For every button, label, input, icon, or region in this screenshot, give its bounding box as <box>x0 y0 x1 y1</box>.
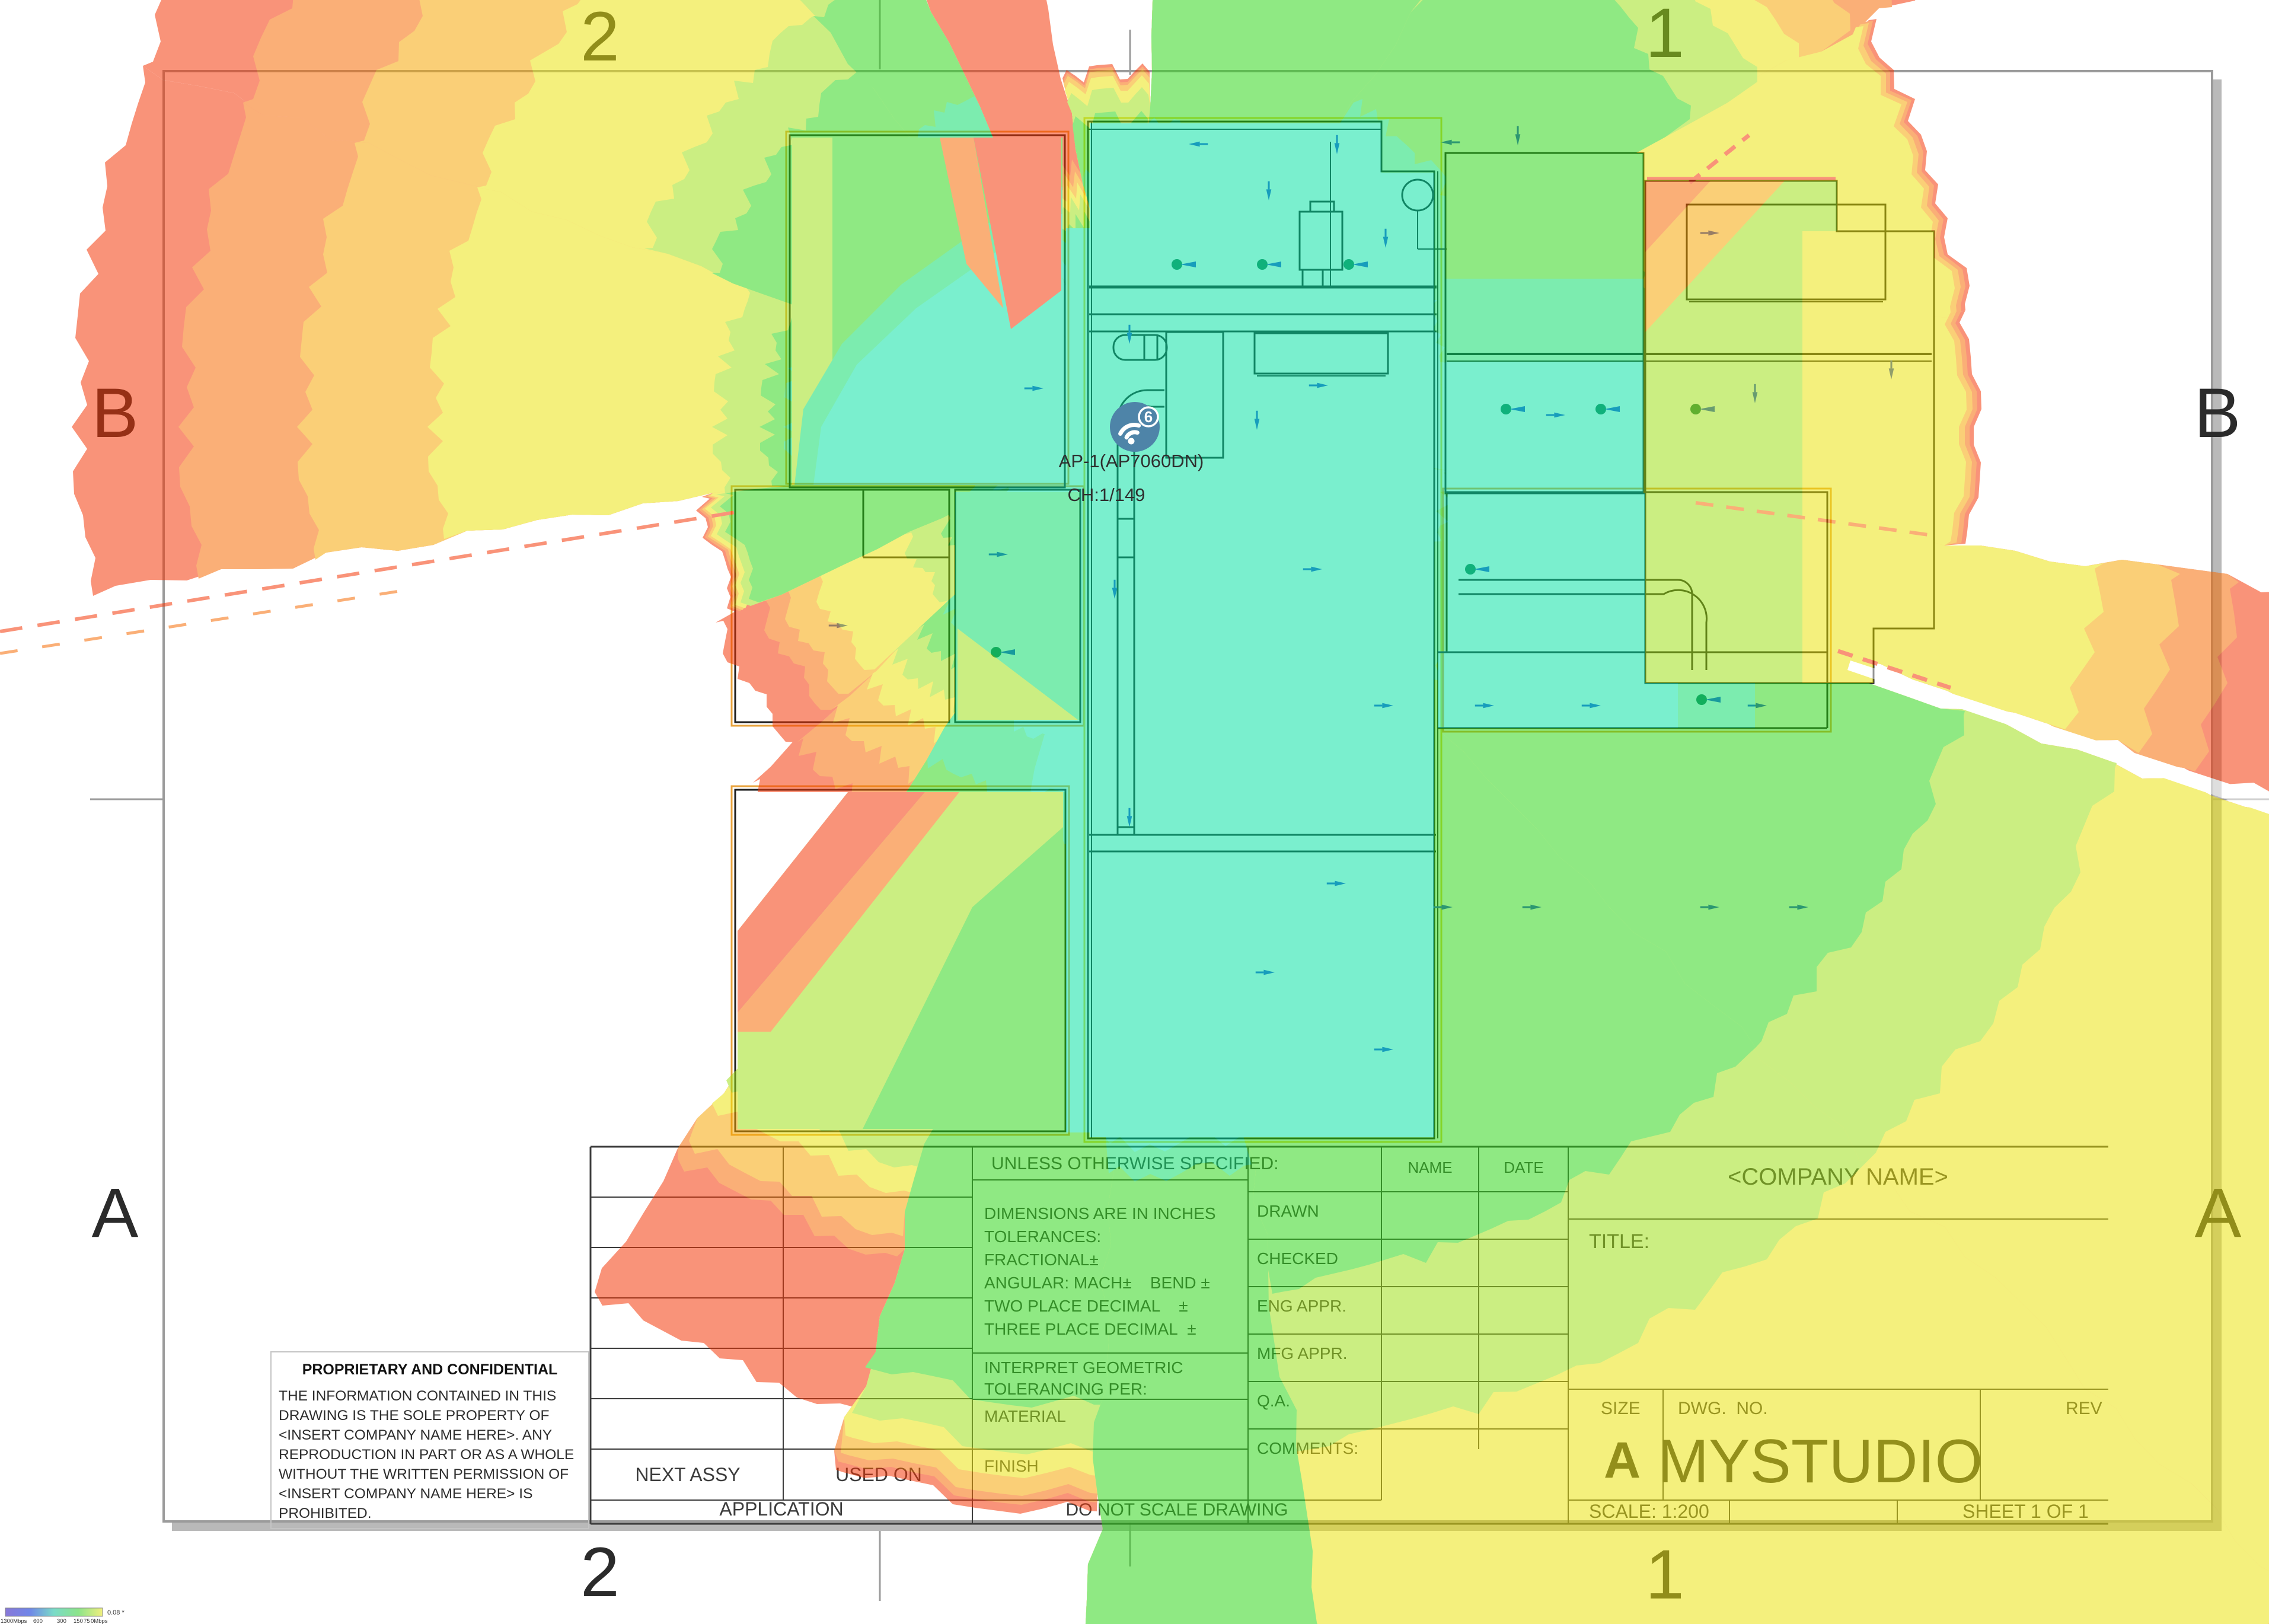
svg-text:AP-1(AP7060DN): AP-1(AP7060DN) <box>1059 451 1204 471</box>
svg-text:6: 6 <box>1144 408 1153 426</box>
svg-text:CH:1/149: CH:1/149 <box>1068 484 1145 505</box>
